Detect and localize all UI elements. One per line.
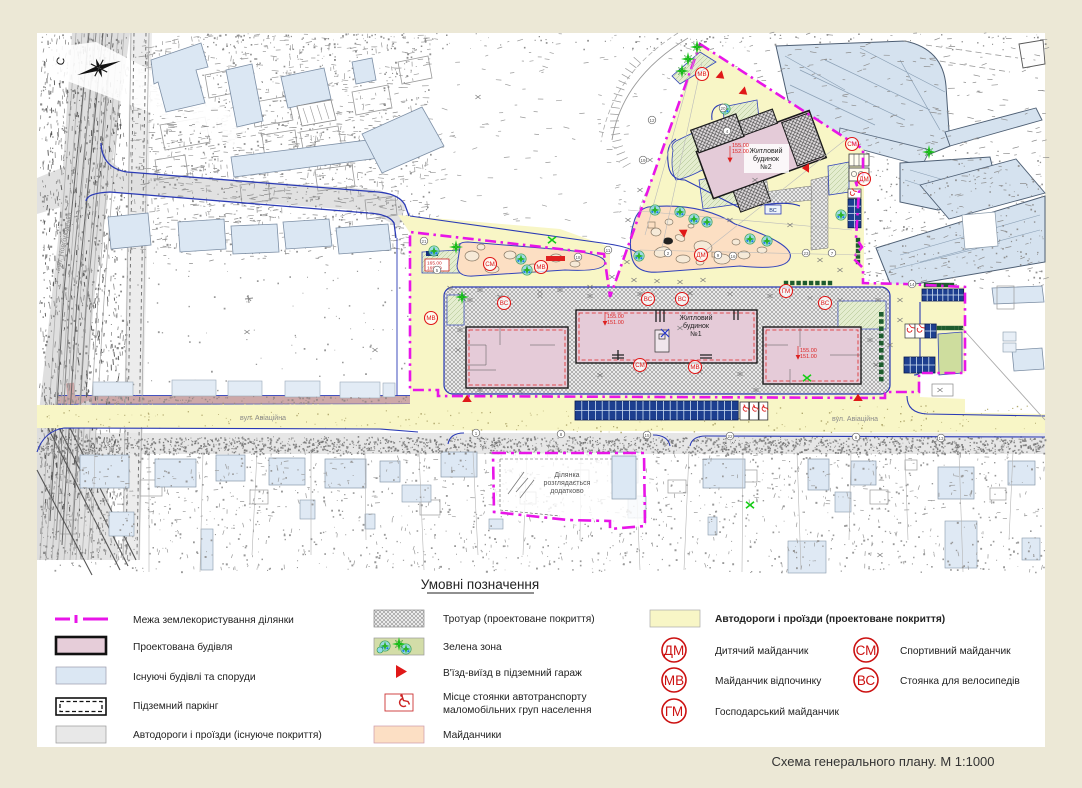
svg-text:Існуючі будівлі та споруди: Існуючі будівлі та споруди (133, 671, 256, 683)
svg-text:23: 23 (803, 251, 809, 256)
svg-text:Проектована будівля: Проектована будівля (133, 641, 232, 653)
svg-text:Підземний паркінг: Підземний паркінг (133, 701, 219, 712)
svg-text:Спортивний майданчик: Спортивний майданчик (900, 646, 1011, 657)
svg-text:Автодороги і проїзди (існуюче: Автодороги і проїзди (існуюче покриття) (133, 730, 322, 741)
svg-text:ВС: ВС (644, 296, 653, 303)
svg-text:16: 16 (730, 254, 736, 259)
svg-text:ДМ: ДМ (664, 643, 684, 658)
svg-text:Автодороги і проїзди (проектов: Автодороги і проїзди (проектоване покрит… (715, 614, 945, 625)
svg-text:ДМ: ДМ (696, 252, 705, 259)
svg-text:МВ: МВ (536, 264, 545, 271)
svg-text:СМ: СМ (635, 362, 645, 369)
svg-text:СМ: СМ (856, 643, 877, 658)
svg-text:21: 21 (421, 239, 427, 244)
svg-text:ГМ: ГМ (782, 288, 790, 295)
svg-text:19: 19 (640, 158, 646, 163)
svg-text:Стоянка для велосипедів: Стоянка для велосипедів (900, 676, 1020, 687)
svg-text:вул. Авіаційна: вул. Авіаційна (240, 414, 286, 422)
svg-text:розглядається: розглядається (544, 480, 591, 487)
svg-text:ВС: ВС (678, 296, 687, 303)
svg-text:МВ: МВ (426, 315, 435, 322)
svg-text:Майданчики: Майданчики (443, 730, 501, 741)
svg-text:ВС: ВС (857, 673, 876, 688)
svg-text:14: 14 (909, 282, 915, 287)
svg-text:ГМ: ГМ (665, 704, 683, 719)
svg-text:додатково: додатково (550, 488, 584, 495)
svg-text:В'їзд-виїзд в підземний гараж: В'їзд-виїзд в підземний гараж (443, 668, 582, 679)
svg-text:Умовні позначення: Умовні позначення (421, 577, 539, 592)
svg-text:20: 20 (720, 106, 726, 111)
svg-text:Зелена зона: Зелена зона (443, 642, 502, 653)
svg-text:ВС: ВС (821, 300, 830, 307)
svg-text:будинок: будинок (753, 155, 780, 163)
svg-text:ВС: ВС (769, 208, 776, 214)
svg-text:Майданчик відпочинку: Майданчик відпочинку (715, 676, 822, 687)
svg-text:МВ: МВ (697, 71, 706, 78)
svg-text:11: 11 (606, 248, 611, 253)
svg-text:Господарський майданчик: Господарський майданчик (715, 707, 839, 718)
svg-text:МВ: МВ (690, 364, 699, 371)
svg-text:маломобільних груп населення: маломобільних груп населення (443, 704, 591, 716)
svg-text:Житловий: Житловий (679, 314, 712, 322)
svg-text:Житловий: Житловий (749, 147, 782, 155)
svg-text:18: 18 (575, 255, 581, 260)
svg-text:ДМ: ДМ (859, 176, 868, 183)
svg-text:Місце стоянки автотранспорту: Місце стоянки автотранспорту (443, 692, 587, 703)
svg-text:Межа землекористування ділянки: Межа землекористування ділянки (133, 615, 294, 626)
svg-text:Схема генерального плану. М 1: Схема генерального плану. М 1:1000 (771, 754, 994, 769)
svg-text:Ділянка: Ділянка (554, 471, 579, 479)
svg-text:12: 12 (649, 118, 655, 123)
svg-text:вул. Авіаційна: вул. Авіаційна (832, 415, 878, 423)
svg-text:ВС: ВС (500, 300, 509, 307)
svg-text:МВ: МВ (664, 673, 684, 688)
svg-text:13: 13 (938, 436, 944, 441)
svg-text:151.00: 151.00 (607, 320, 624, 326)
svg-text:СМ: СМ (485, 261, 495, 268)
svg-text:СМ: СМ (847, 141, 857, 148)
svg-text:22: 22 (727, 434, 733, 439)
svg-text:№2: №2 (760, 164, 772, 171)
svg-text:15: 15 (644, 433, 650, 438)
svg-text:будинок: будинок (683, 322, 710, 330)
svg-text:Дитячий майданчик: Дитячий майданчик (715, 646, 809, 657)
svg-text:152.00: 152.00 (732, 149, 749, 155)
svg-text:151.00: 151.00 (800, 354, 817, 360)
svg-text:№1: №1 (690, 331, 702, 338)
svg-text:Тротуар (проектоване покриття): Тротуар (проектоване покриття) (443, 614, 595, 625)
